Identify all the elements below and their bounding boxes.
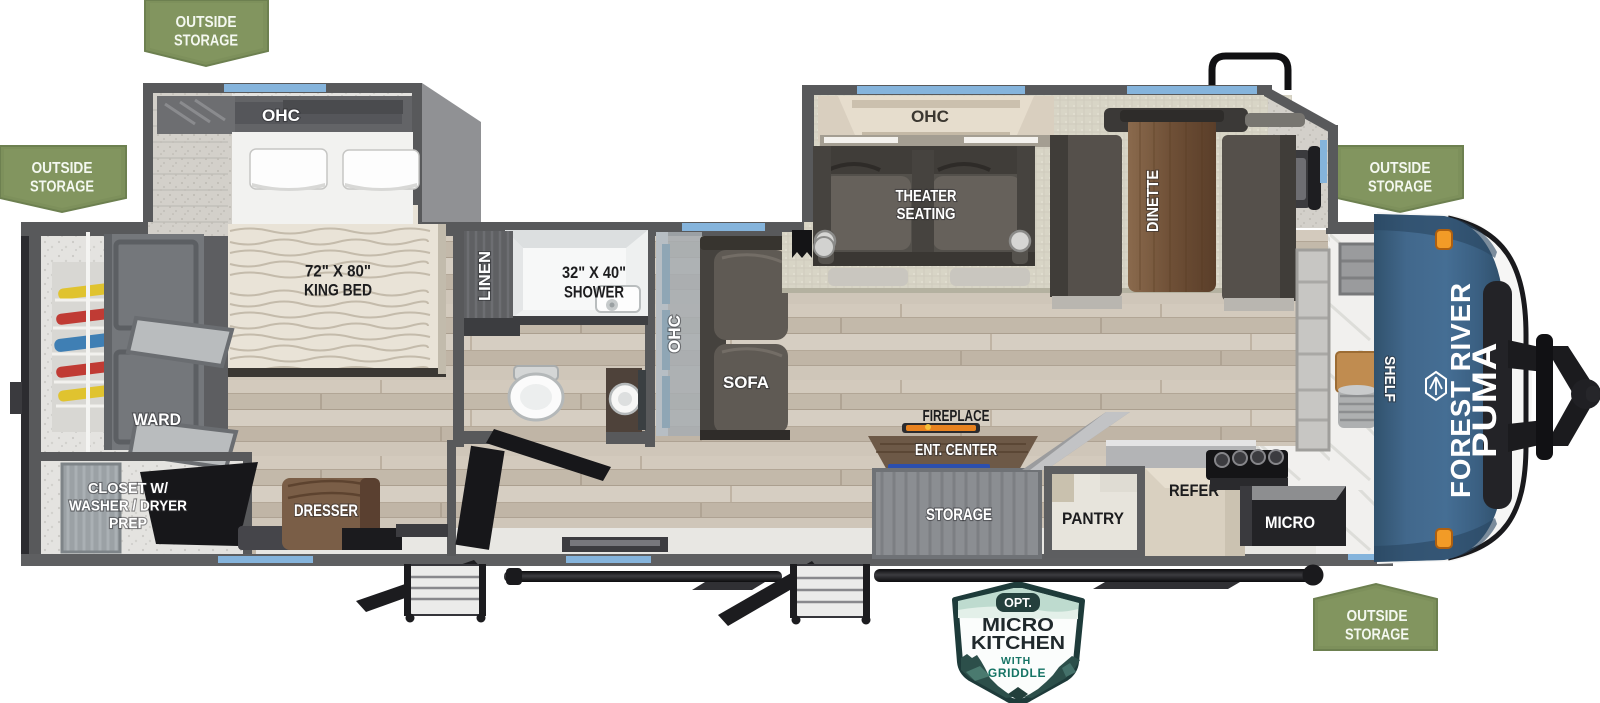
svg-text:STORAGE: STORAGE bbox=[30, 179, 94, 196]
svg-text:SHELF: SHELF bbox=[1381, 356, 1397, 402]
svg-text:PUMA: PUMA bbox=[1466, 342, 1504, 458]
svg-text:OUTSIDE: OUTSIDE bbox=[1347, 608, 1408, 625]
svg-text:MICRO: MICRO bbox=[1265, 514, 1315, 532]
svg-text:OHC: OHC bbox=[666, 315, 684, 353]
svg-text:FIREPLACE: FIREPLACE bbox=[923, 408, 990, 425]
svg-text:OUTSIDE: OUTSIDE bbox=[1370, 160, 1431, 177]
svg-text:THEATER: THEATER bbox=[896, 188, 957, 205]
svg-text:32" X 40": 32" X 40" bbox=[562, 264, 626, 282]
svg-text:OHC: OHC bbox=[911, 108, 949, 126]
svg-text:SOFA: SOFA bbox=[723, 374, 769, 392]
svg-text:OHC: OHC bbox=[262, 106, 300, 125]
svg-text:DRESSER: DRESSER bbox=[294, 502, 358, 520]
svg-text:72" X 80": 72" X 80" bbox=[305, 263, 371, 281]
svg-text:DINETTE: DINETTE bbox=[1145, 170, 1162, 232]
svg-text:PANTRY: PANTRY bbox=[1062, 509, 1125, 528]
svg-text:CLOSET W/: CLOSET W/ bbox=[88, 481, 168, 497]
svg-text:STORAGE: STORAGE bbox=[1368, 179, 1432, 196]
svg-text:KING BED: KING BED bbox=[304, 282, 372, 300]
svg-text:KITCHEN: KITCHEN bbox=[971, 632, 1065, 653]
svg-text:OUTSIDE: OUTSIDE bbox=[176, 14, 237, 31]
svg-text:PREP: PREP bbox=[109, 516, 147, 532]
svg-text:STORAGE: STORAGE bbox=[1345, 627, 1409, 644]
svg-text:SHOWER: SHOWER bbox=[564, 284, 624, 302]
svg-text:WARD: WARD bbox=[133, 411, 181, 429]
svg-text:STORAGE: STORAGE bbox=[926, 506, 992, 524]
svg-text:LINEN: LINEN bbox=[477, 251, 494, 301]
svg-text:STORAGE: STORAGE bbox=[174, 33, 238, 50]
svg-text:GRIDDLE: GRIDDLE bbox=[988, 666, 1046, 680]
svg-text:WASHER / DRYER: WASHER / DRYER bbox=[69, 499, 187, 515]
svg-text:OPT.: OPT. bbox=[1004, 596, 1032, 610]
svg-text:ENT. CENTER: ENT. CENTER bbox=[915, 442, 997, 459]
svg-text:SEATING: SEATING bbox=[897, 206, 956, 223]
svg-text:OUTSIDE: OUTSIDE bbox=[32, 160, 93, 177]
